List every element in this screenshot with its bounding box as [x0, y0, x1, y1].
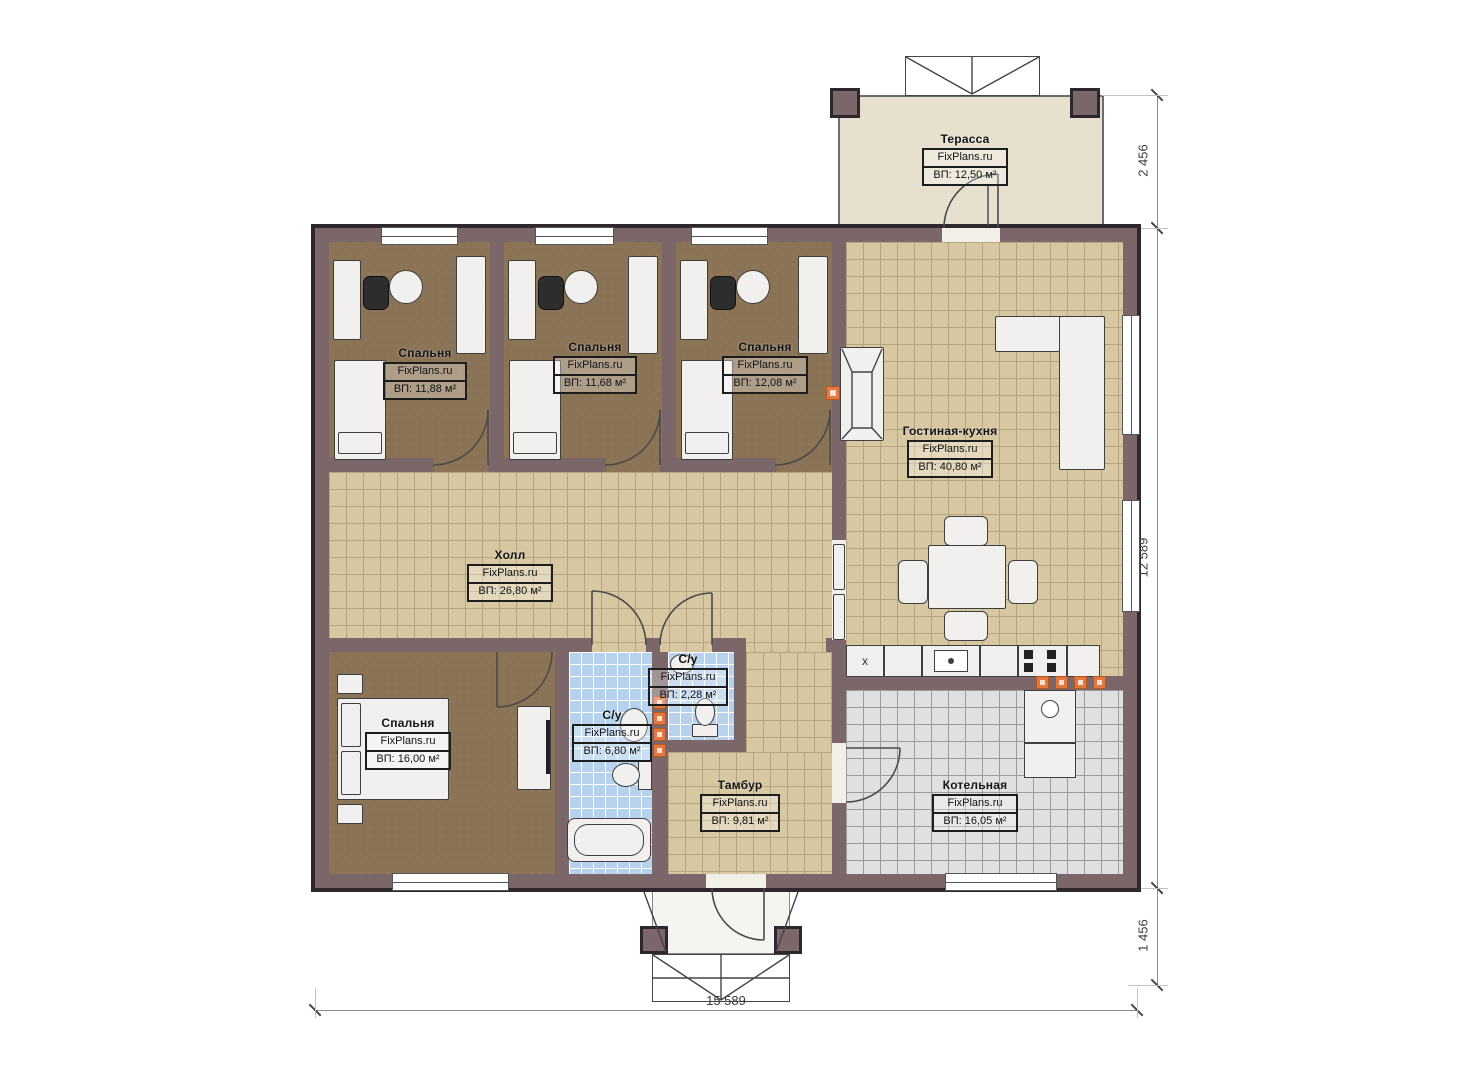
entrance-door-opening	[706, 874, 766, 888]
room-name: Терасса	[941, 132, 990, 146]
room-name: Холл	[495, 548, 526, 562]
vestibule-floor-upper	[746, 652, 832, 752]
room-area: ВП: 2,28 м²	[650, 688, 725, 704]
double-door-leaf-top	[833, 544, 845, 590]
wall-hall-bottom-2	[646, 638, 660, 652]
porch-pillar-right	[774, 926, 802, 954]
room-tag: FixPlans.ru ВП: 16,00 м²	[365, 732, 450, 770]
room-tag: FixPlans.ru ВП: 6,80 м²	[572, 724, 651, 762]
wall-wc-bottom	[668, 740, 734, 752]
room-area: ВП: 11,88 м²	[385, 382, 465, 398]
room-label-bedroom1: Спальня FixPlans.ru ВП: 11,88 м²	[350, 346, 500, 400]
room-area: ВП: 40,80 м²	[909, 460, 990, 476]
window-living-2	[1122, 500, 1140, 612]
watermark: FixPlans.ru	[574, 726, 649, 744]
room-tag: FixPlans.ru ВП: 9,81 м²	[700, 794, 779, 832]
room-label-bedroom2: Спальня FixPlans.ru ВП: 11,68 м²	[520, 340, 670, 394]
extension-line	[1141, 228, 1168, 229]
stove-burner	[1024, 650, 1033, 659]
dimension-line-bottom	[315, 1010, 1137, 1011]
terrace-steps	[905, 56, 1040, 96]
radiator-marker	[1055, 676, 1068, 689]
wardrobe	[456, 256, 486, 354]
wall-hall-bottom-1	[329, 638, 592, 652]
terrace-door-opening	[942, 228, 1000, 242]
room-name: Гостиная-кухня	[903, 424, 998, 438]
desk-chair	[363, 276, 389, 310]
room-area: ВП: 16,00 м²	[367, 752, 448, 768]
counter-corner	[1067, 645, 1100, 677]
double-door-leaf-bottom	[833, 594, 845, 640]
room-area: ВП: 6,80 м²	[574, 744, 649, 760]
window-bedroom1	[381, 227, 458, 245]
extension-line	[1141, 888, 1168, 889]
room-tag: FixPlans.ru ВП: 16,05 м²	[932, 794, 1017, 832]
wall-hall-top-3	[660, 458, 776, 472]
desk-chair	[710, 276, 736, 310]
dining-chair-right	[1008, 560, 1038, 604]
radiator-marker	[1093, 676, 1106, 689]
watermark: FixPlans.ru	[555, 358, 635, 376]
dining-chair-left	[898, 560, 928, 604]
round-table	[564, 270, 598, 304]
window-boiler	[945, 873, 1057, 891]
wall-hall-top-1	[329, 458, 434, 472]
boiler-door-opening	[832, 743, 846, 803]
room-tag: FixPlans.ru ВП: 2,28 м²	[648, 668, 727, 706]
watermark: FixPlans.ru	[469, 566, 550, 584]
wall-hall-top-2	[488, 458, 606, 472]
room-label-hall: Холл FixPlans.ru ВП: 26,80 м²	[435, 548, 585, 602]
room-label-bedroom4: Спальня FixPlans.ru ВП: 16,00 м²	[343, 716, 473, 770]
watermark: FixPlans.ru	[385, 364, 465, 382]
fridge: x	[846, 645, 884, 677]
watermark: FixPlans.ru	[650, 670, 725, 688]
room-tag: FixPlans.ru ВП: 40,80 м²	[907, 440, 992, 478]
room-name: Тамбур	[718, 778, 763, 792]
counter-segment	[980, 645, 1018, 677]
desk	[333, 260, 361, 340]
window-bedroom4	[392, 873, 509, 891]
dining-table	[928, 545, 1006, 609]
wall-hall-bottom-3	[712, 638, 746, 652]
room-area: ВП: 9,81 м²	[702, 814, 777, 830]
room-name: С/у	[678, 652, 697, 666]
terrace-pillar-right	[1070, 88, 1100, 118]
wall-hall-bottom-4	[826, 638, 832, 652]
watermark: FixPlans.ru	[909, 442, 990, 460]
room-name: Спальня	[738, 340, 791, 354]
watermark: FixPlans.ru	[367, 734, 448, 752]
round-table	[736, 270, 770, 304]
room-name: С/у	[602, 708, 621, 722]
room-tag: FixPlans.ru ВП: 11,88 м²	[383, 362, 467, 400]
nightstand	[337, 674, 363, 694]
floor-plan-page: x	[0, 0, 1473, 1080]
bed-pillow	[685, 432, 729, 454]
room-area: ВП: 16,05 м²	[934, 814, 1015, 830]
terrace-pillar-left	[830, 88, 860, 118]
window-living-1	[1122, 315, 1140, 435]
watermark: FixPlans.ru	[724, 358, 805, 376]
stove-burner	[1047, 650, 1056, 659]
dining-chair-bottom	[944, 611, 988, 641]
room-name: Спальня	[568, 340, 621, 354]
dim-label-house-width: 15 589	[686, 993, 766, 1008]
room-label-bedroom3: Спальня FixPlans.ru ВП: 12,08 м²	[690, 340, 840, 394]
room-label-terrace: Терасса FixPlans.ru ВП: 12,50 м²	[890, 132, 1040, 186]
dim-label-terrace-depth: 2 456	[1136, 136, 1151, 186]
room-area: ВП: 11,68 м²	[555, 376, 635, 392]
boiler-gauge	[1041, 700, 1059, 718]
room-tag: FixPlans.ru ВП: 26,80 м²	[467, 564, 552, 602]
dining-chair-top	[944, 516, 988, 546]
room-name: Спальня	[398, 346, 451, 360]
room-tag: FixPlans.ru ВП: 12,08 м²	[722, 356, 807, 394]
watermark: FixPlans.ru	[934, 796, 1015, 814]
watermark: FixPlans.ru	[702, 796, 777, 814]
fridge-x-marker: x	[862, 654, 868, 668]
sofa-right	[1059, 316, 1105, 470]
porch-floor	[652, 888, 790, 954]
toilet-bowl	[612, 763, 640, 787]
stove-burner	[1047, 663, 1056, 672]
room-label-vestibule: Тамбур FixPlans.ru ВП: 9,81 м²	[675, 778, 805, 832]
counter-segment	[884, 645, 922, 677]
nightstand	[337, 804, 363, 824]
window-bedroom3	[691, 227, 768, 245]
bed-pillow	[513, 432, 557, 454]
round-table	[389, 270, 423, 304]
window-bedroom2	[535, 227, 614, 245]
extension-line	[1137, 988, 1138, 1018]
room-label-wc: С/у FixPlans.ru ВП: 2,28 м²	[623, 652, 753, 706]
radiator-marker	[1074, 676, 1087, 689]
extension-line	[1128, 985, 1168, 986]
room-area: ВП: 26,80 м²	[469, 584, 550, 600]
toilet-tank	[638, 760, 652, 790]
extension-line	[315, 988, 316, 1018]
room-name: Спальня	[381, 716, 434, 730]
dim-label-porch-depth: 1 456	[1136, 911, 1151, 961]
watermark: FixPlans.ru	[924, 150, 1005, 168]
desk	[508, 260, 536, 340]
room-label-living-kitchen: Гостиная-кухня FixPlans.ru ВП: 40,80 м²	[875, 424, 1025, 478]
room-label-boiler: Котельная FixPlans.ru ВП: 16,05 м²	[905, 778, 1045, 832]
sink-drain	[948, 658, 954, 664]
boiler-divider	[1025, 742, 1075, 744]
porch-pillar-left	[640, 926, 668, 954]
bed-pillow	[338, 432, 382, 454]
bathtub-inner	[574, 824, 644, 856]
stove-burner	[1024, 663, 1033, 672]
room-area: ВП: 12,50 м²	[924, 168, 1005, 184]
room-label-bathroom: С/у FixPlans.ru ВП: 6,80 м²	[547, 708, 677, 762]
extension-line	[1102, 95, 1168, 96]
room-name: Котельная	[943, 778, 1008, 792]
desk-chair	[538, 276, 564, 310]
room-area: ВП: 12,08 м²	[724, 376, 805, 392]
radiator-marker	[1036, 676, 1049, 689]
desk	[680, 260, 708, 340]
room-tag: FixPlans.ru ВП: 11,68 м²	[553, 356, 637, 394]
room-tag: FixPlans.ru ВП: 12,50 м²	[922, 148, 1007, 186]
